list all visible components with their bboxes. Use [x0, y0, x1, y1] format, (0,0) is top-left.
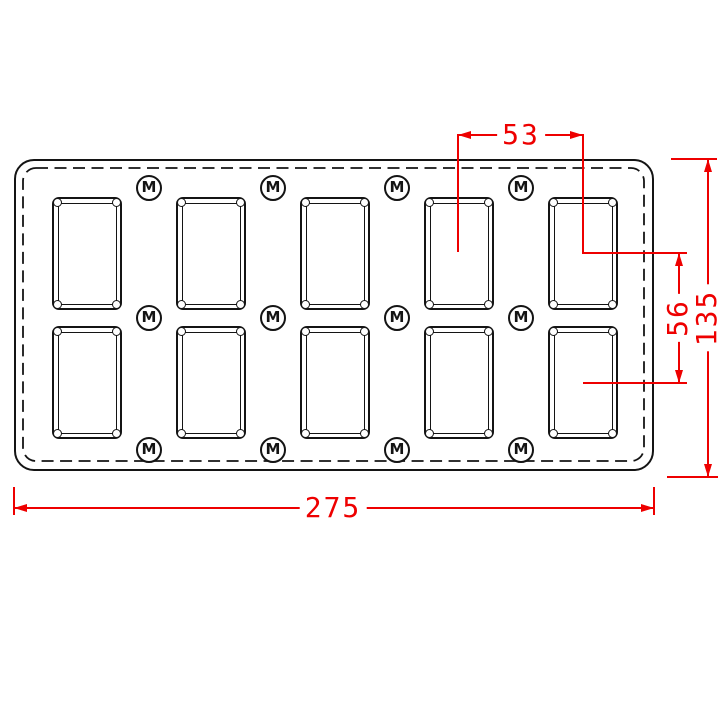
mounting-marker: M [136, 437, 162, 463]
corner-relief-dot [425, 327, 434, 336]
switch-opening [300, 326, 370, 439]
corner-relief-dot [236, 198, 245, 207]
corner-relief-dot [425, 429, 434, 438]
mounting-marker: M [260, 175, 286, 201]
corner-relief-dot [112, 300, 121, 309]
corner-relief-dot [177, 300, 186, 309]
corner-relief-dot [360, 198, 369, 207]
mounting-marker: M [260, 437, 286, 463]
corner-relief-dot [484, 198, 493, 207]
corner-relief-dot [112, 327, 121, 336]
corner-relief-dot [360, 300, 369, 309]
corner-relief-dot [177, 198, 186, 207]
mounting-marker: M [260, 305, 286, 331]
corner-relief-dot [549, 300, 558, 309]
corner-relief-dot [425, 198, 434, 207]
extension-line [457, 134, 459, 252]
corner-relief-dot [177, 429, 186, 438]
mounting-marker: M [136, 305, 162, 331]
corner-relief-dot [608, 327, 617, 336]
corner-relief-dot [484, 327, 493, 336]
arrow-down-icon [704, 464, 712, 477]
corner-relief-dot [236, 429, 245, 438]
corner-relief-dot [53, 198, 62, 207]
switch-opening [52, 197, 122, 310]
mounting-marker: M [508, 305, 534, 331]
corner-relief-dot [484, 300, 493, 309]
corner-relief-dot [53, 429, 62, 438]
opening-inner-outline [182, 203, 241, 305]
corner-relief-dot [236, 327, 245, 336]
arrow-right-icon [641, 504, 654, 512]
arrow-up-icon [704, 159, 712, 172]
corner-relief-dot [549, 327, 558, 336]
corner-relief-dot [236, 300, 245, 309]
corner-relief-dot [112, 429, 121, 438]
arrow-up-icon [675, 253, 683, 266]
switch-opening [300, 197, 370, 310]
corner-relief-dot [549, 429, 558, 438]
opening-inner-outline [306, 203, 365, 305]
corner-relief-dot [360, 327, 369, 336]
corner-relief-dot [301, 198, 310, 207]
corner-relief-dot [425, 300, 434, 309]
dim-value-56: 56 [664, 294, 692, 342]
mounting-marker: M [384, 305, 410, 331]
extension-line [583, 252, 687, 254]
corner-relief-dot [177, 327, 186, 336]
arrow-down-icon [675, 370, 683, 383]
corner-relief-dot [301, 327, 310, 336]
dim-value-135: 135 [693, 285, 720, 352]
switch-opening [52, 326, 122, 439]
corner-relief-dot [549, 198, 558, 207]
opening-inner-outline [430, 332, 489, 434]
opening-inner-outline [58, 332, 117, 434]
mounting-marker: M [508, 437, 534, 463]
opening-inner-outline [306, 332, 365, 434]
corner-relief-dot [608, 198, 617, 207]
drawing-canvas: MMMMMMMMMMMM 53 56 135 275 [0, 0, 720, 720]
corner-relief-dot [53, 300, 62, 309]
mounting-marker: M [508, 175, 534, 201]
arrow-right-icon [570, 131, 583, 139]
dim-value-53: 53 [497, 121, 545, 149]
corner-relief-dot [360, 429, 369, 438]
switch-opening [176, 326, 246, 439]
corner-relief-dot [484, 429, 493, 438]
corner-relief-dot [608, 300, 617, 309]
corner-relief-dot [53, 327, 62, 336]
switch-opening [176, 197, 246, 310]
opening-inner-outline [58, 203, 117, 305]
dim-value-275: 275 [300, 494, 367, 522]
switch-opening [424, 326, 494, 439]
extension-line [583, 382, 687, 384]
arrow-left-icon [14, 504, 27, 512]
mounting-marker: M [384, 437, 410, 463]
corner-relief-dot [301, 300, 310, 309]
opening-inner-outline [430, 203, 489, 305]
opening-inner-outline [182, 332, 241, 434]
mounting-marker: M [384, 175, 410, 201]
corner-relief-dot [301, 429, 310, 438]
corner-relief-dot [112, 198, 121, 207]
arrow-left-icon [458, 131, 471, 139]
extension-line [582, 134, 584, 254]
corner-relief-dot [608, 429, 617, 438]
switch-opening [424, 197, 494, 310]
mounting-marker: M [136, 175, 162, 201]
